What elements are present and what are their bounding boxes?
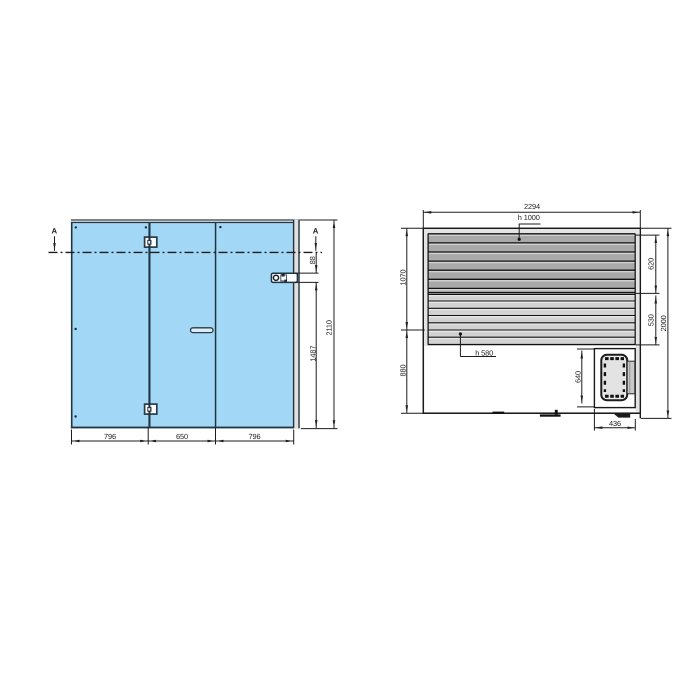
svg-text:h 580: h 580 — [475, 349, 493, 358]
svg-text:796: 796 — [104, 432, 116, 441]
svg-text:88: 88 — [308, 256, 317, 264]
svg-text:620: 620 — [647, 258, 656, 270]
svg-text:530: 530 — [647, 314, 656, 326]
svg-text:640: 640 — [574, 371, 583, 383]
svg-text:2110: 2110 — [325, 320, 334, 336]
svg-text:650: 650 — [176, 432, 188, 441]
svg-text:796: 796 — [248, 432, 260, 441]
svg-text:h 1000: h 1000 — [518, 213, 540, 222]
svg-text:A: A — [313, 226, 319, 235]
svg-text:880: 880 — [399, 364, 408, 376]
svg-text:1070: 1070 — [399, 269, 408, 285]
svg-text:2294: 2294 — [524, 202, 540, 211]
svg-text:2000: 2000 — [659, 315, 668, 331]
svg-text:1487: 1487 — [308, 346, 317, 362]
svg-text:A: A — [51, 226, 57, 235]
svg-text:436: 436 — [609, 419, 621, 428]
